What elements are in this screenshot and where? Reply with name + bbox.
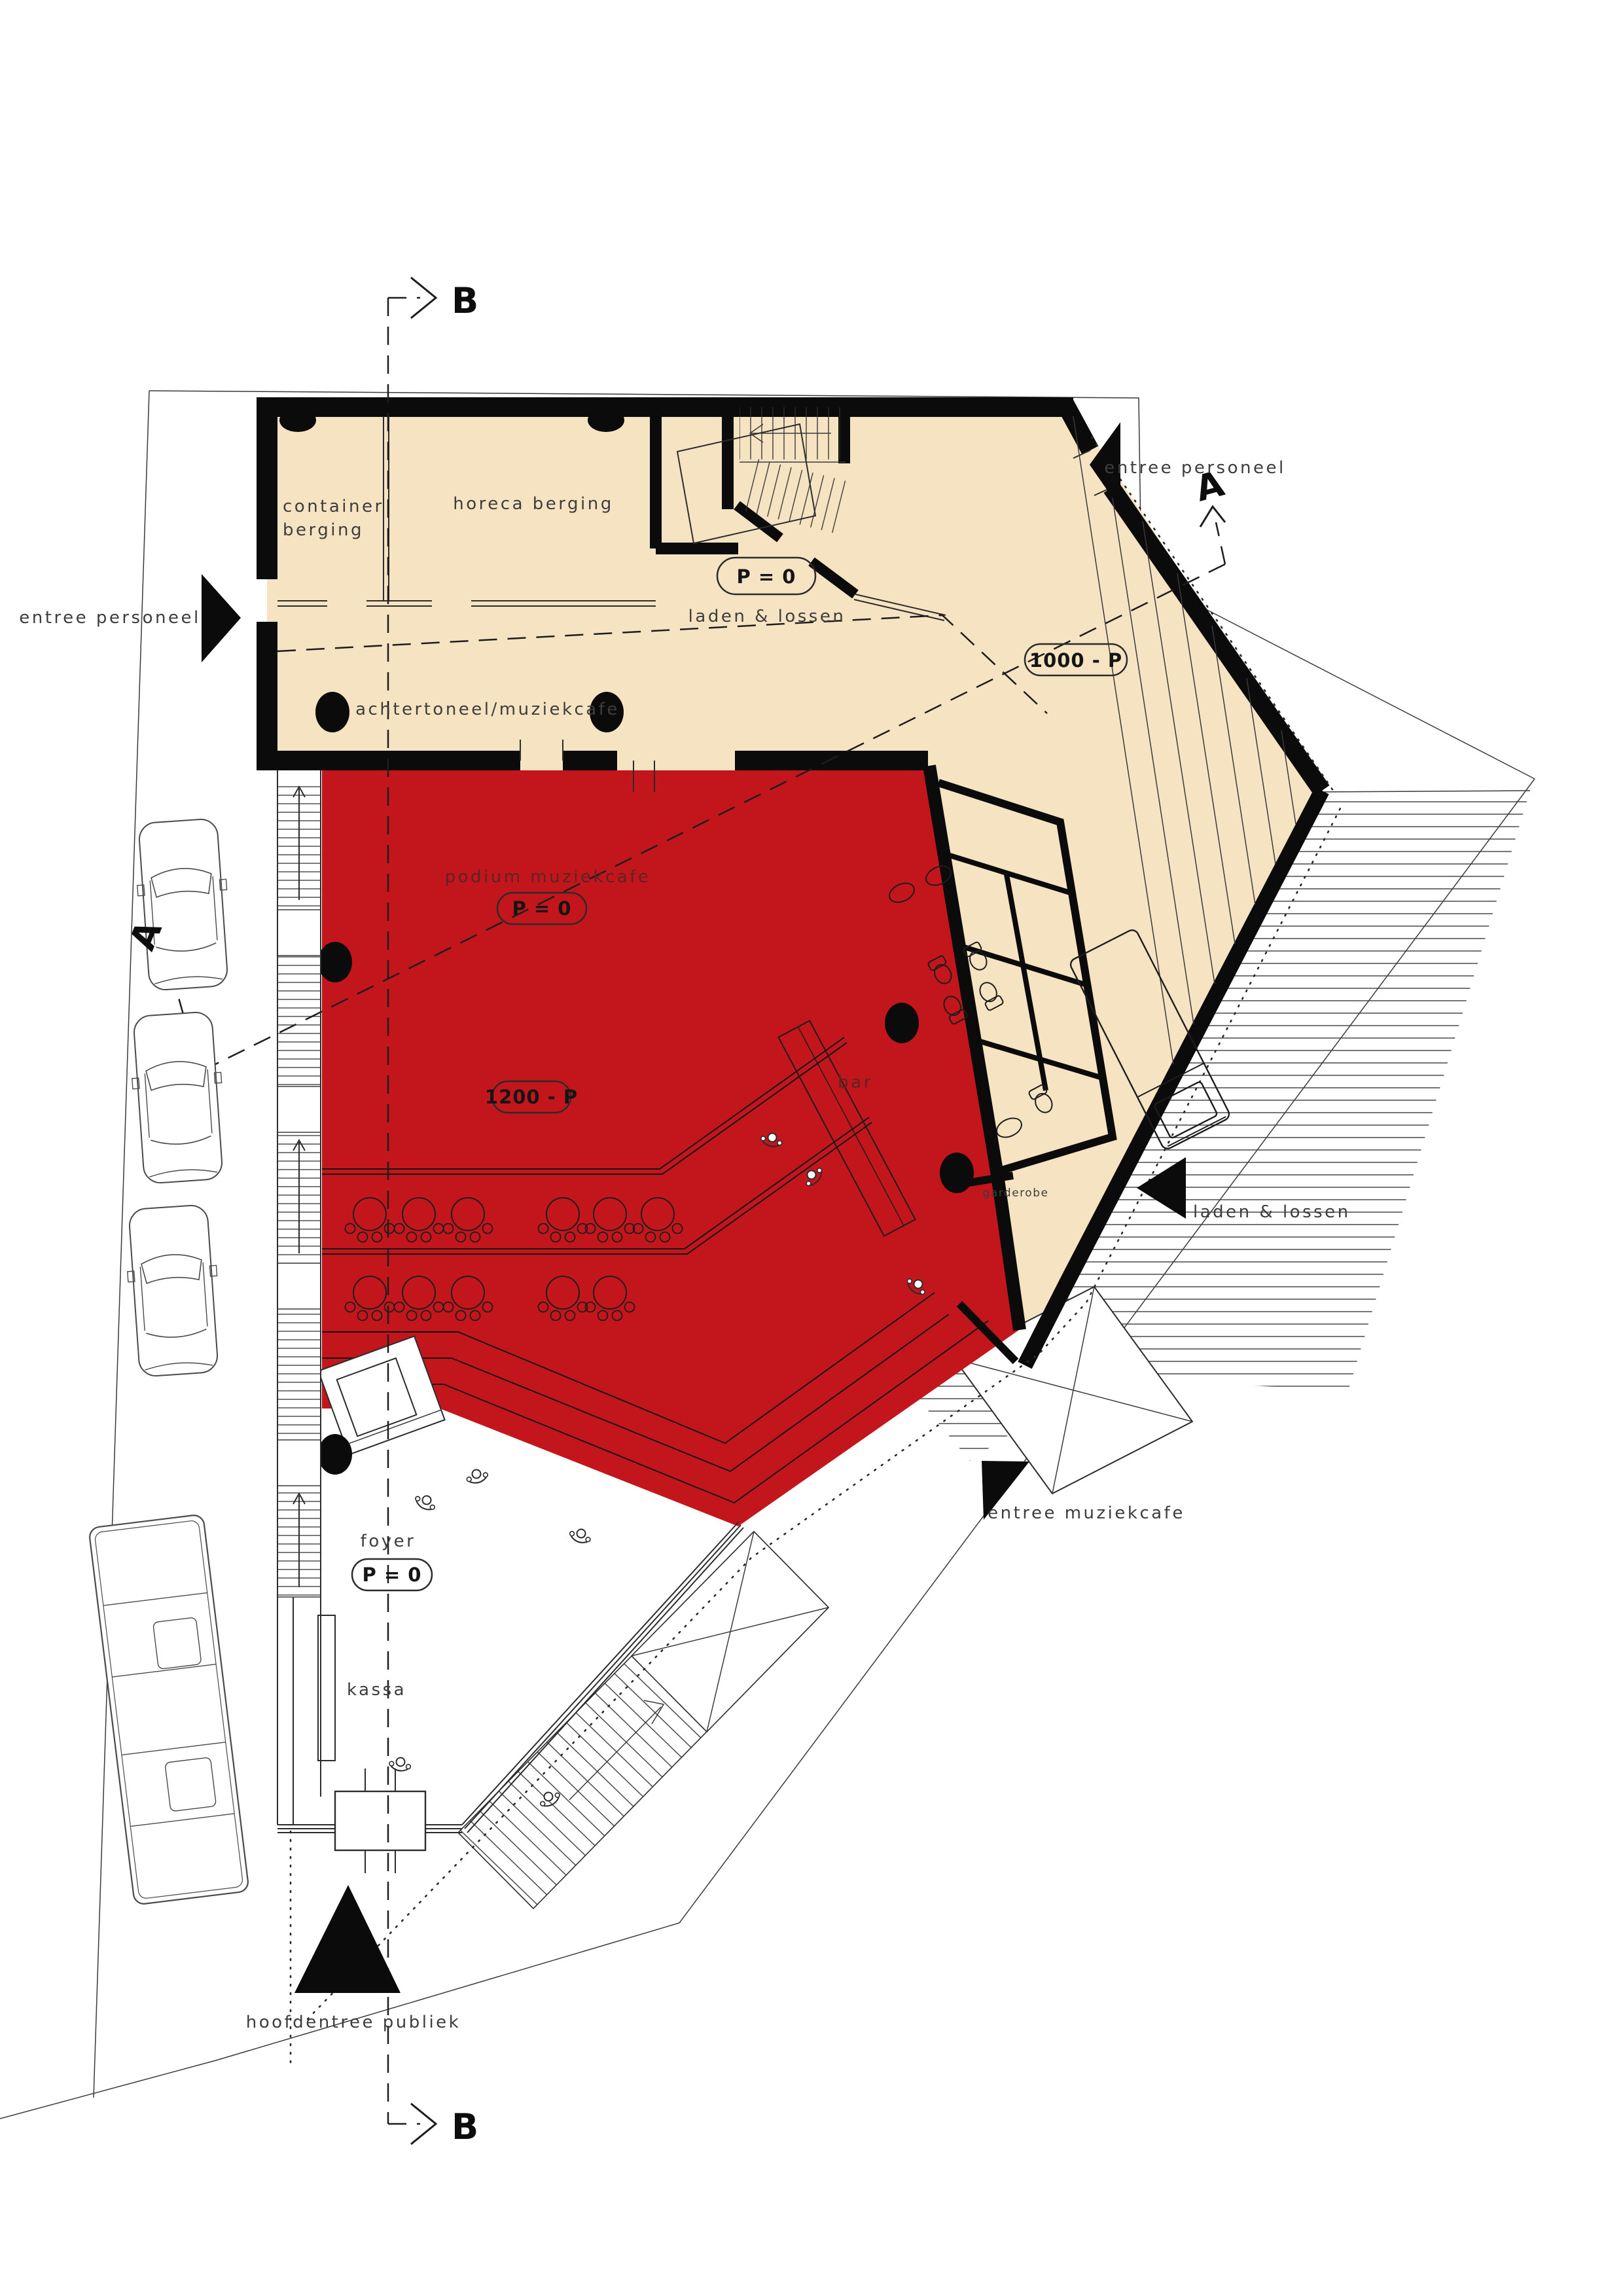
foyer-ramp [458,1532,829,1909]
label-entree-muziekcafe: entree muziekcafe [988,1503,1185,1523]
label-entree-personeel-left: entree personeel [19,608,200,628]
bus-icon [88,1514,249,1905]
label-1000p: 1000 - P [1029,649,1122,672]
label-bar: bar [838,1073,873,1092]
label-podium: podium muziekcafe [445,867,651,887]
label-p0-podium: P = 0 [512,897,572,920]
label-laden-lossen-right: laden & lossen [1193,1202,1351,1222]
label-1200p: 1200 - P [485,1086,578,1108]
parked-cars [123,818,234,1378]
label-horeca-berging: horeca berging [453,494,613,514]
section-label-b-bottom: B [452,2106,478,2147]
side-stairs [277,770,321,1825]
label-container-1: container [283,497,384,516]
label-kassa: kassa [347,1680,406,1700]
label-p0-laden: P = 0 [737,565,796,588]
section-label-b-top: B [452,280,478,321]
entrance-arrow-icon-personeel-left [202,574,241,662]
column-bump [279,408,316,432]
label-foyer: foyer [361,1532,416,1551]
label-garderobe: garderobe [983,1187,1049,1200]
label-p0-foyer: P = 0 [363,1564,422,1586]
label-entree-personeel-top: entree personeel [1104,458,1285,478]
floorplan-page: B B A A entree personeel entree personee… [0,0,1623,2296]
label-achtertoneel: achtertoneel/muziekcafe [355,700,620,719]
label-laden-lossen-top: laden & lossen [688,607,846,626]
floorplan-drawing: B B A A entree personeel entree personee… [0,0,1623,2296]
label-container-2: berging [283,520,364,540]
label-hoofdentree: hoofdentree publiek [246,2013,461,2032]
column-bump [588,408,624,432]
